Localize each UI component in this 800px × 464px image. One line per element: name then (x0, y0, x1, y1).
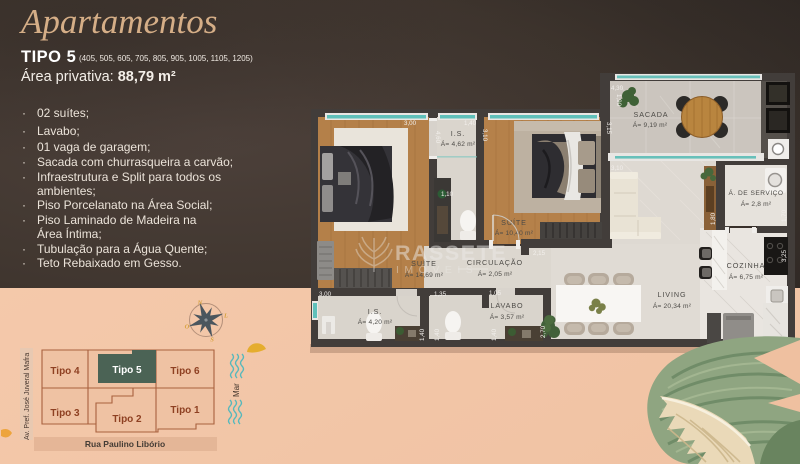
svg-text:·: · (22, 140, 26, 154)
svg-text:Tipo 2: Tipo 2 (112, 414, 142, 425)
svg-text:Á= 20,34 m²: Á= 20,34 m² (653, 301, 692, 310)
svg-text:L: L (223, 313, 228, 320)
svg-text:02 suítes;: 02 suítes; (37, 106, 89, 120)
svg-text:1,70: 1,70 (781, 209, 788, 222)
svg-text:O: O (185, 324, 190, 331)
svg-text:Área privativa: 88,79 m²: Área privativa: 88,79 m² (21, 68, 176, 85)
svg-text:S: S (210, 337, 214, 344)
svg-text:Á= 4,20 m²: Á= 4,20 m² (358, 317, 393, 326)
svg-text:Tipo 1: Tipo 1 (170, 405, 200, 416)
svg-text:Á= 2,8 m²: Á= 2,8 m² (741, 199, 772, 208)
svg-text:Rua Paulino Libório: Rua Paulino Libório (85, 439, 165, 449)
svg-text:1,10: 1,10 (441, 191, 454, 198)
svg-text:1,05: 1,05 (489, 290, 502, 297)
svg-text:Á= 2,05 m²: Á= 2,05 m² (478, 269, 513, 278)
svg-text:01 vaga de garagem;: 01 vaga de garagem; (37, 140, 150, 154)
svg-text:3,10: 3,10 (481, 129, 488, 142)
svg-text:RASSETE: RASSETE (395, 241, 507, 265)
svg-text:·: · (22, 213, 26, 227)
svg-text:3,00: 3,00 (404, 120, 417, 127)
svg-text:1,40: 1,40 (419, 328, 426, 341)
svg-text:·: · (22, 106, 26, 120)
svg-text:Piso Porcelanato na Área Socia: Piso Porcelanato na Área Social; (37, 197, 212, 212)
svg-text:3,15: 3,15 (605, 122, 612, 135)
svg-text:LAVABO: LAVABO (490, 301, 523, 310)
svg-text:Mar: Mar (232, 383, 241, 397)
svg-text:Á= 3,57 m²: Á= 3,57 m² (490, 312, 525, 321)
svg-text:LIVING: LIVING (658, 290, 687, 299)
svg-text:I.S.: I.S. (451, 129, 465, 138)
svg-text:·: · (22, 256, 26, 270)
svg-text:·: · (22, 124, 26, 138)
svg-text:Tubulação para a Água Quente;: Tubulação para a Água Quente; (37, 241, 207, 256)
svg-text:TIPO 5: TIPO 5 (21, 48, 76, 66)
svg-text:SACADA: SACADA (634, 110, 669, 119)
svg-text:Piso Laminado de Madeira na: Piso Laminado de Madeira na (37, 213, 197, 227)
svg-text:4,60: 4,60 (434, 131, 441, 144)
svg-text:Lavabo;: Lavabo; (37, 124, 80, 138)
svg-text:·: · (22, 198, 26, 212)
svg-text:N: N (197, 300, 203, 307)
svg-text:Tipo 5: Tipo 5 (112, 365, 142, 376)
svg-text:3,00: 3,00 (319, 291, 332, 298)
svg-text:Á= 10,40 m²: Á= 10,40 m² (495, 228, 534, 237)
svg-text:·: · (22, 155, 26, 169)
svg-text:Á. DE SERVIÇO: Á. DE SERVIÇO (728, 188, 783, 197)
svg-text:Tipo 3: Tipo 3 (50, 408, 80, 419)
svg-text:Á= 4,62 m²: Á= 4,62 m² (441, 139, 476, 148)
svg-text:Tipo 6: Tipo 6 (170, 366, 200, 377)
svg-text:ambientes;: ambientes; (37, 184, 96, 198)
svg-text:I.S.: I.S. (368, 307, 382, 316)
svg-text:·: · (22, 170, 26, 184)
svg-text:1,80: 1,80 (710, 212, 717, 225)
svg-text:Av. Pref. José Juveral Mafra: Av. Pref. José Juveral Mafra (24, 353, 31, 440)
svg-text:Teto Rebaixado em Gesso.: Teto Rebaixado em Gesso. (37, 256, 182, 270)
svg-text:3,25: 3,25 (781, 249, 788, 262)
svg-text:1,35: 1,35 (434, 291, 447, 298)
svg-text:Á= 6,75 m²: Á= 6,75 m² (729, 272, 764, 281)
svg-text:Á= 9,19 m²: Á= 9,19 m² (633, 120, 668, 129)
svg-text:·: · (22, 242, 26, 256)
svg-text:2,70: 2,70 (540, 325, 547, 338)
svg-text:Infraestrutura e Split para to: Infraestrutura e Split para todos os (37, 170, 221, 184)
svg-text:1,40: 1,40 (464, 120, 477, 127)
svg-text:Área Íntima;: Área Íntima; (37, 226, 102, 241)
svg-text:(405, 505, 605, 705, 805, 905,: (405, 505, 605, 705, 805, 905, 1005, 110… (79, 54, 253, 63)
svg-text:4,30: 4,30 (611, 85, 624, 92)
svg-text:1,40: 1,40 (434, 328, 441, 341)
svg-text:1,40: 1,40 (491, 328, 498, 341)
svg-text:Apartamentos: Apartamentos (19, 2, 217, 41)
svg-text:3,10: 3,10 (611, 165, 624, 172)
svg-text:COZINHA: COZINHA (727, 261, 766, 270)
svg-text:2,15: 2,15 (533, 250, 546, 257)
svg-text:1,90: 1,90 (615, 94, 622, 107)
svg-text:Tipo 4: Tipo 4 (50, 366, 80, 377)
svg-text:Sacada com churrasqueira a car: Sacada com churrasqueira a carvão; (37, 155, 233, 169)
